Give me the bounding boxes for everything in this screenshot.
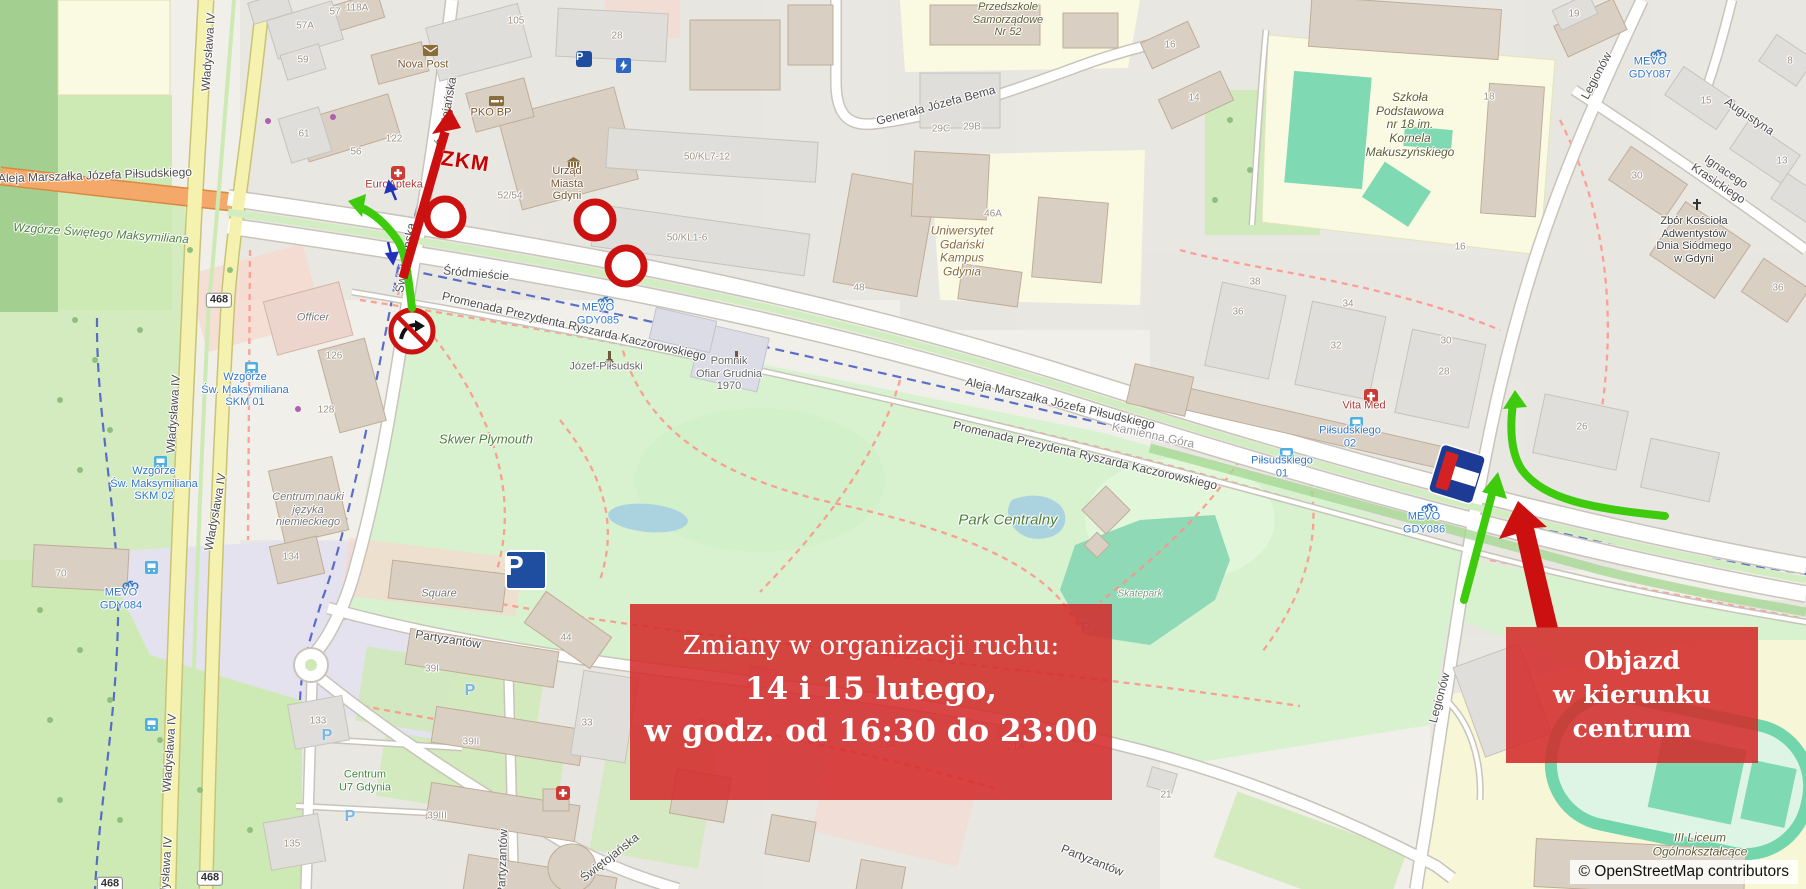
- map-screenshot: PPPPPP Aleja Marszałka Józefa Piłsudskie…: [0, 0, 1806, 889]
- road-closure-circles: [427, 199, 644, 284]
- detour-line2: w kierunku centrum: [1506, 678, 1758, 746]
- traffic-change-notice: Zmiany w organizacji ruchu: 14 i 15 lute…: [630, 604, 1112, 800]
- closure-direction-arrows: [403, 108, 1558, 628]
- no-through-road-sign-icon: [1428, 443, 1487, 504]
- notice-hours: w godz. od 16:30 do 23:00: [630, 713, 1112, 749]
- detour-line1: Objazd: [1506, 644, 1758, 678]
- notice-title: Zmiany w organizacji ruchu:: [630, 631, 1112, 661]
- osm-attribution[interactable]: © OpenStreetMap contributors: [1570, 860, 1798, 884]
- notice-dates: 14 i 15 lutego,: [630, 671, 1112, 707]
- detour-route-arrows: [364, 209, 1665, 600]
- no-turn-sign-icon: [391, 310, 433, 352]
- detour-notice: Objazd w kierunku centrum: [1506, 627, 1758, 763]
- detour-arrowheads: [348, 194, 1527, 499]
